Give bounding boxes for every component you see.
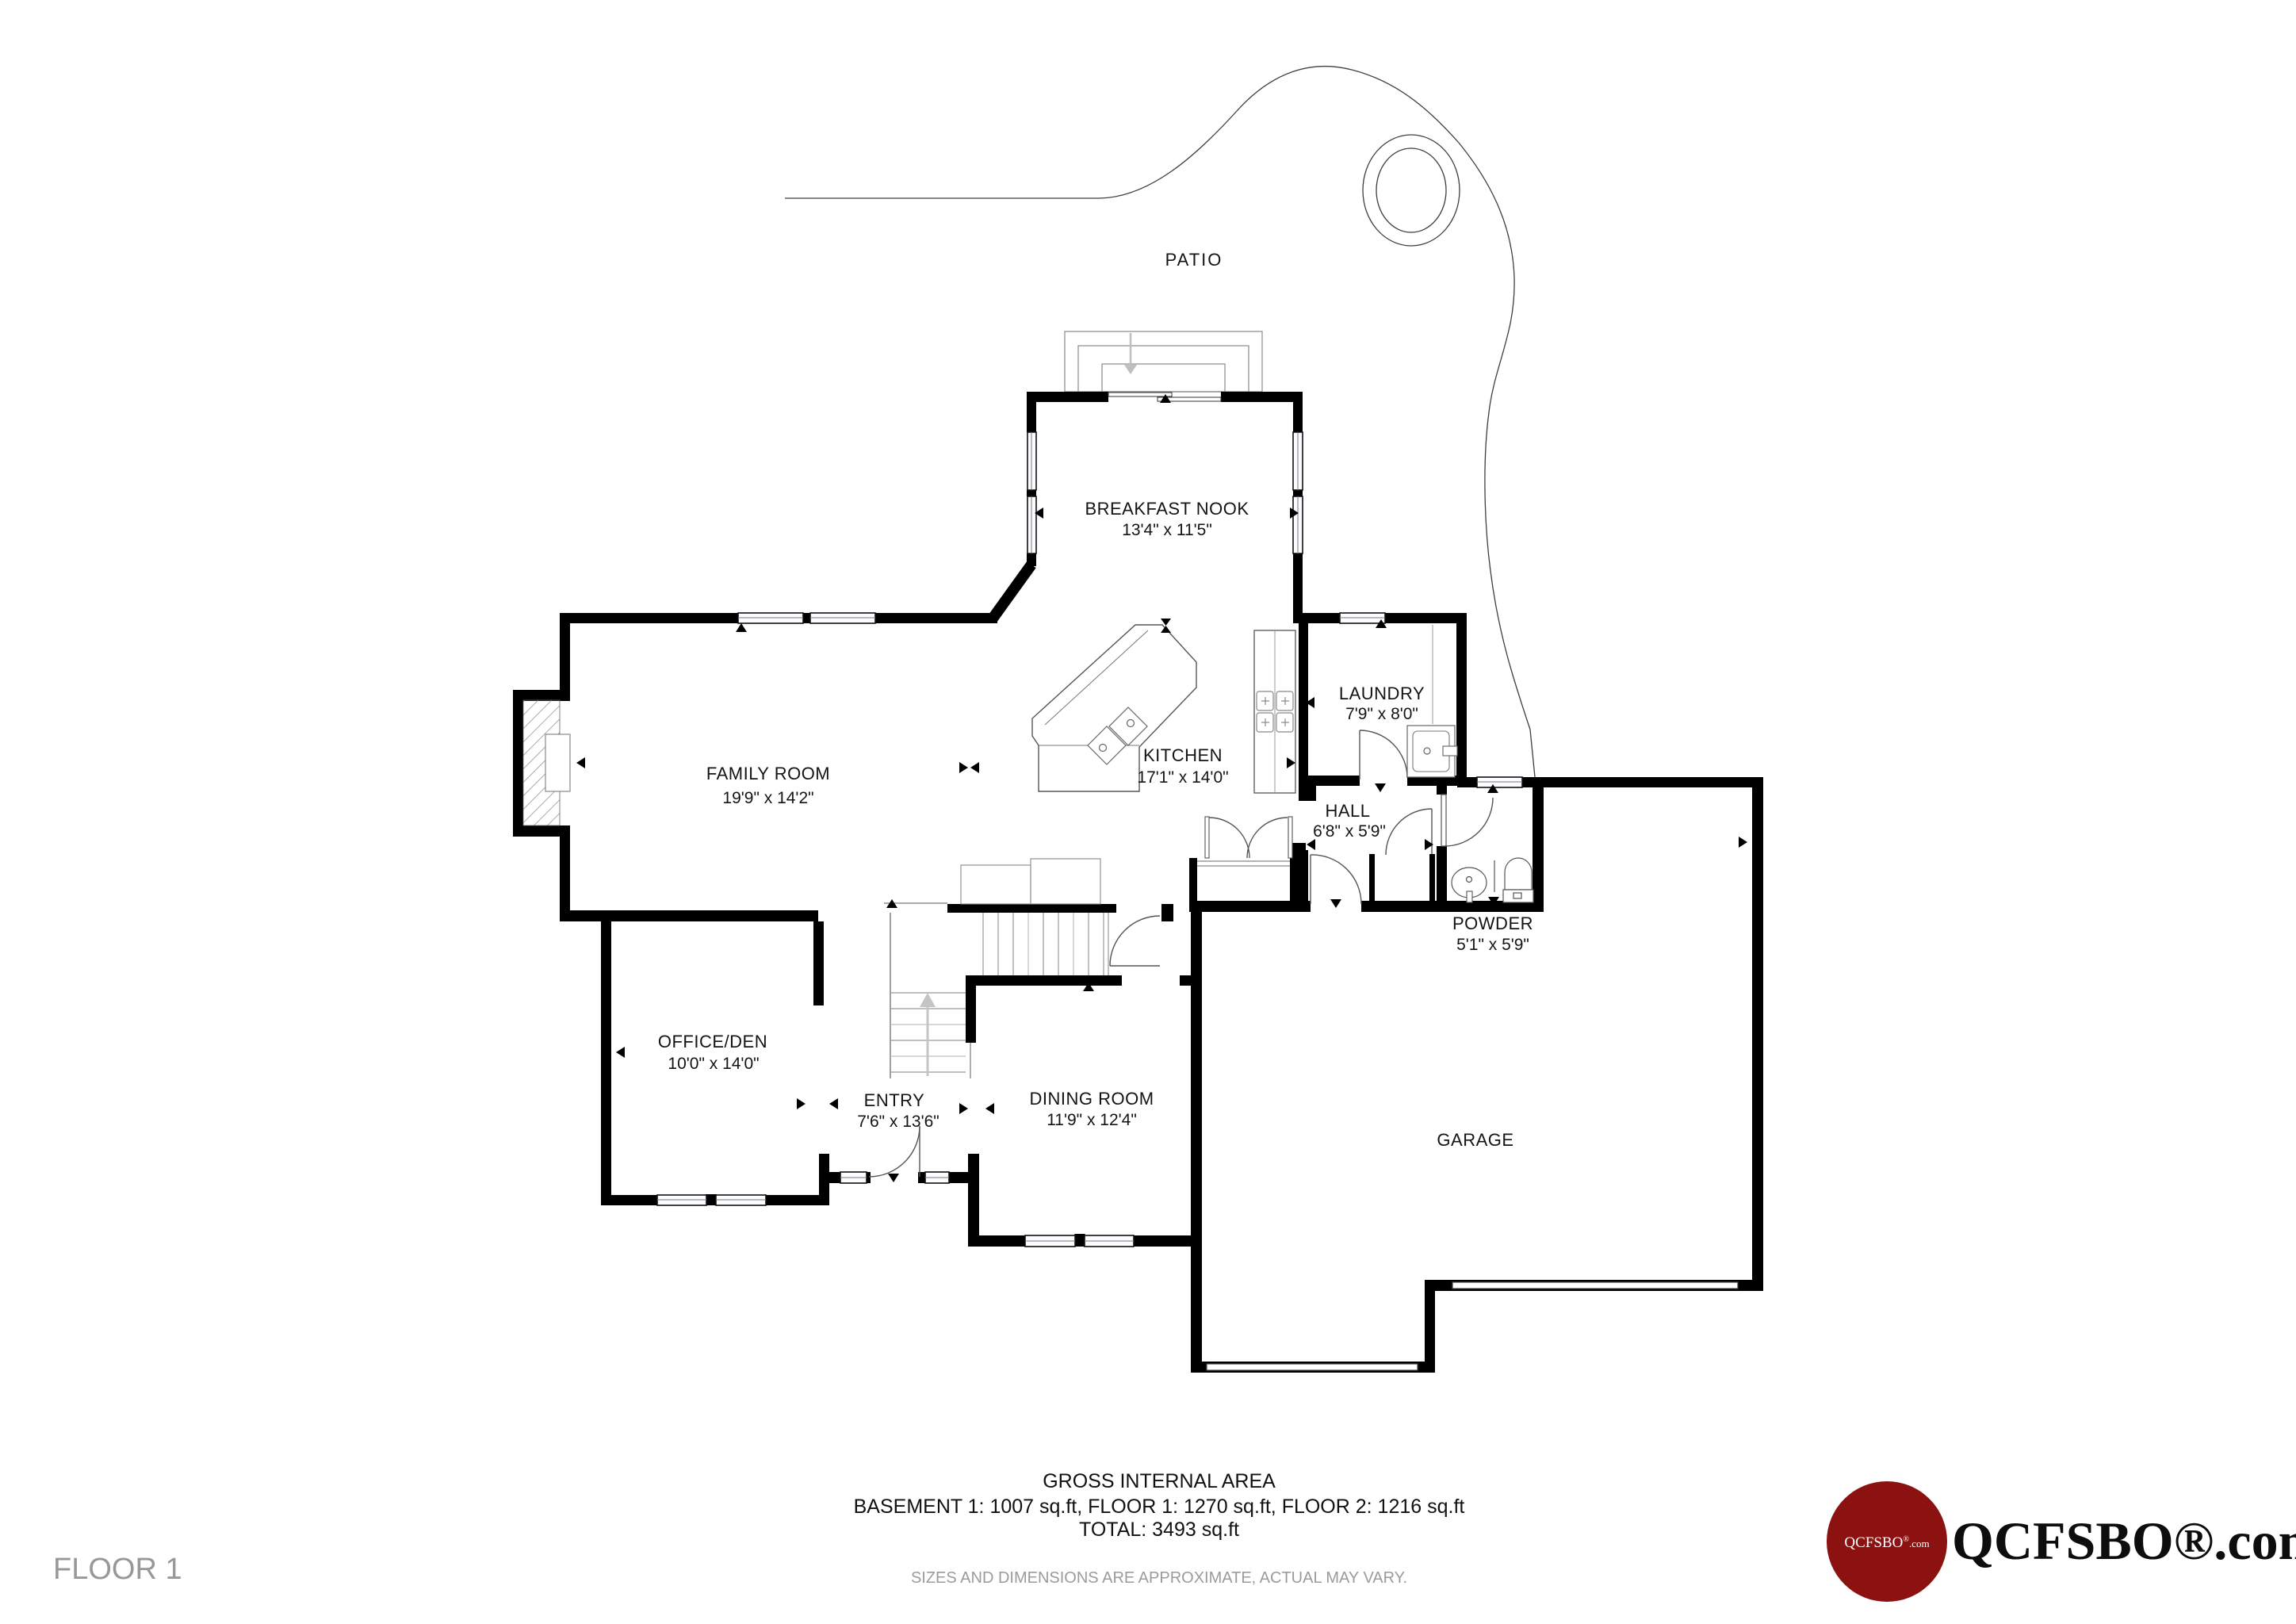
room-label-laundry: LAUNDRY 7'9" x 8'0" [1339,684,1425,723]
fireplace [523,700,570,825]
kitchen-french-doors [1197,817,1292,866]
powder-fixtures [1452,858,1533,902]
front-door [869,1126,920,1177]
room-label-family-room: FAMILY ROOM 19'9" x 14'2" [706,764,830,807]
room-label-powder: POWDER 5'1" x 5'9" [1452,913,1533,954]
room-label-hall: HALL 6'8" x 5'9" [1313,801,1386,841]
room-label-dining-room: DINING ROOM 11'9" x 12'4" [1029,1089,1154,1129]
window [1340,613,1385,623]
room-dims: 17'1" x 14'0" [1137,768,1228,787]
room-dims: 5'1" x 5'9" [1456,936,1529,954]
kitchen-island [1032,625,1196,791]
room-dims: 6'8" x 5'9" [1313,822,1386,841]
logo-circle-com: .com [1909,1538,1930,1549]
footer: GROSS INTERNAL AREA BASEMENT 1: 1007 sq.… [53,1470,1464,1587]
room-name: PATIO [1165,250,1223,270]
window [1027,432,1036,490]
garage-door-right [1452,1282,1738,1289]
qcfsbo-logo: QCFSBO®.com QCFSBO®.com [1827,1481,2296,1602]
floor-plan-svg: PATIO BREAKFAST NOOK 13'4" x 11'5" FAMIL… [0,0,2296,1624]
window [716,1195,766,1205]
room-label-patio: PATIO [1165,250,1223,270]
window [1293,432,1303,490]
window [1085,1235,1134,1247]
hall-door [1311,855,1361,904]
window [810,613,875,623]
room-label-garage: GARAGE [1437,1130,1513,1150]
window [840,1172,867,1183]
room-name: KITCHEN [1143,745,1223,765]
patio-steps [1065,331,1262,392]
room-dims: 19'9" x 14'2" [722,789,813,807]
room-dims: 13'4" x 11'5" [1122,521,1212,539]
step-down-arrow-icon [1124,365,1137,374]
room-dims: 7'6" x 13'6" [857,1113,939,1131]
room-name: ENTRY [864,1090,925,1110]
floor-number-label: FLOOR 1 [53,1553,182,1586]
powder-door [1441,795,1493,846]
window [1027,496,1036,553]
room-name: BREAKFAST NOOK [1085,499,1249,519]
room-name: DINING ROOM [1029,1089,1154,1109]
room-name: POWDER [1452,913,1533,933]
disclaimer-text: SIZES AND DIMENSIONS ARE APPROXIMATE, AC… [911,1569,1407,1587]
room-name: HALL [1325,801,1370,821]
room-label-entry: ENTRY 7'6" x 13'6" [857,1090,939,1131]
utility-sink-icon [1407,726,1457,777]
room-dims: 10'0" x 14'0" [668,1055,759,1073]
garage-entry-door [1110,916,1160,966]
window [1477,777,1522,787]
total-area-line: TOTAL: 3493 sq.ft [1079,1519,1239,1541]
room-label-breakfast-nook: BREAKFAST NOOK 13'4" x 11'5" [1085,499,1249,539]
window [657,1195,706,1205]
laundry-door [1360,730,1407,779]
stairs [884,859,1108,1078]
hot-tub-outer [1363,135,1460,246]
window [925,1172,949,1183]
logo-circle-label: QCFSBO®.com [1844,1534,1929,1551]
garage-door-left [1207,1364,1418,1370]
garage-doors [1207,1282,1738,1370]
room-dims: 11'9" x 12'4" [1047,1111,1137,1129]
toilet-icon [1503,858,1533,902]
room-name: OFFICE/DEN [658,1032,767,1051]
room-label-office-den: OFFICE/DEN 10'0" x 14'0" [658,1032,767,1073]
window [1025,1235,1075,1247]
sink-icon [1452,868,1487,902]
stairs-up-arrow-icon [920,993,936,1007]
gross-internal-area-title: GROSS INTERNAL AREA [1043,1470,1276,1492]
window [738,613,803,623]
room-name: LAUNDRY [1339,684,1425,703]
floor-plan-page: PATIO BREAKFAST NOOK 13'4" x 11'5" FAMIL… [0,0,2296,1624]
floor-areas-line: BASEMENT 1: 1007 sq.ft, FLOOR 1: 1270 sq… [854,1496,1465,1518]
logo-circle-main: QCFSBO [1844,1534,1903,1551]
room-name: GARAGE [1437,1130,1513,1150]
room-label-kitchen: KITCHEN 17'1" x 14'0" [1137,745,1228,787]
room-name: FAMILY ROOM [706,764,830,783]
brand-text: QCFSBO®.com [1952,1511,2296,1571]
hot-tub-inner [1376,148,1446,232]
room-dims: 7'9" x 8'0" [1345,705,1418,723]
window [1293,496,1303,553]
